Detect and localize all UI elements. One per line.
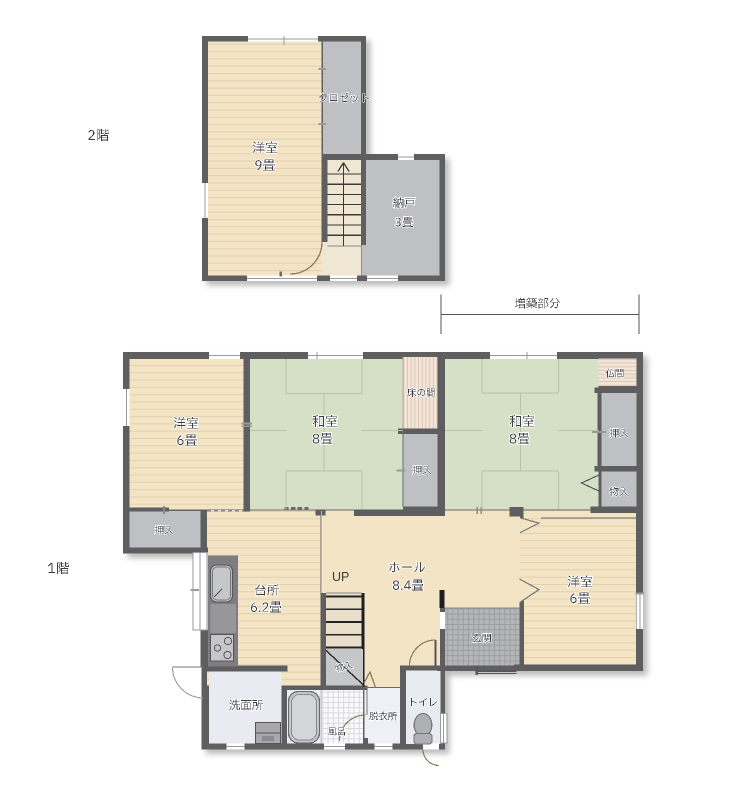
svg-text:UP: UP bbox=[332, 570, 349, 584]
